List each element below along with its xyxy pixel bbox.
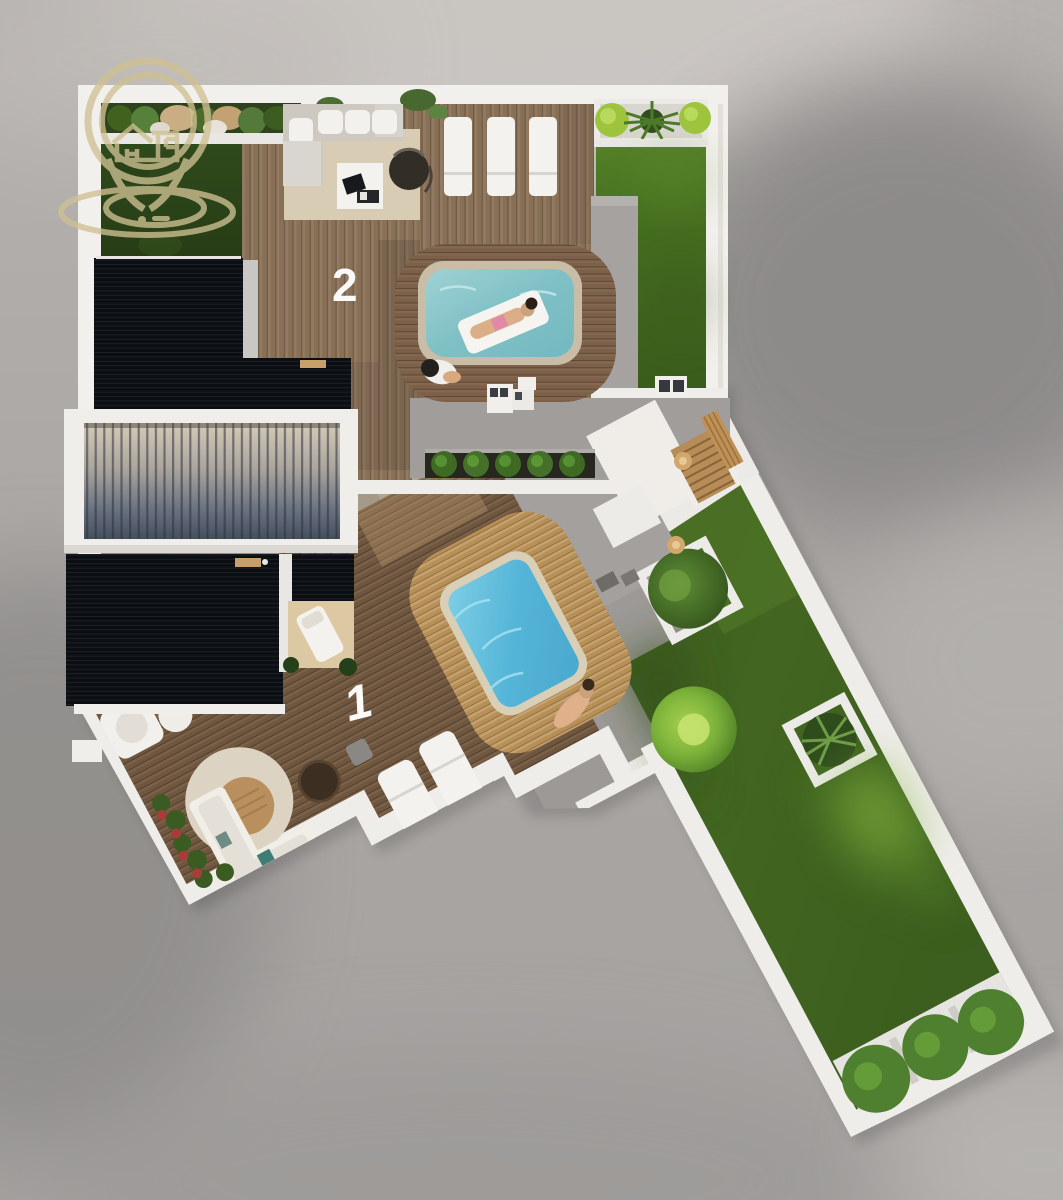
svg-text:2: 2 bbox=[332, 259, 358, 311]
